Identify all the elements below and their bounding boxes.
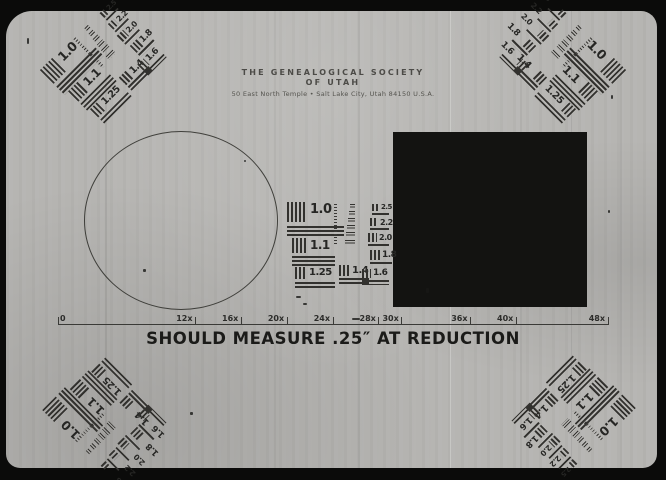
micro-stripe-row	[86, 448, 92, 454]
stripe-block	[339, 265, 350, 276]
micro-tick-strip	[334, 204, 337, 246]
scale-tick	[241, 317, 242, 325]
pattern-label: 1.1	[310, 239, 334, 251]
film-scan: THE GENEALOGICAL SOCIETY OF UTAH 50 East…	[0, 0, 666, 480]
pattern-label: 1.8	[382, 251, 406, 260]
stripe-bar	[370, 228, 389, 232]
stripe-block	[295, 267, 307, 279]
scale-tick-label: 16x	[210, 314, 238, 323]
resolution-target-center: 1.01.11.251.41.61.82.02.22.5	[287, 201, 391, 289]
scale-tick	[195, 317, 196, 325]
film-speck	[143, 269, 146, 272]
film-speck	[303, 303, 307, 305]
scale-tick	[333, 317, 334, 325]
stripe-bar	[295, 282, 335, 289]
film-speck	[296, 296, 301, 298]
micro-stripe-row	[575, 25, 581, 31]
scale-tick	[608, 317, 609, 325]
stripe-block	[362, 269, 371, 278]
scale-tick-label: 48x	[577, 314, 605, 323]
micro-stripe-row	[90, 443, 97, 450]
pattern-label: 2.5	[381, 204, 405, 211]
scale-tick	[516, 317, 517, 325]
stripe-bar	[368, 244, 389, 248]
pattern-label: 2.2	[380, 219, 404, 227]
stripe-bar	[362, 280, 389, 285]
micro-stripe-row	[349, 211, 355, 215]
scale-tick-label: 30x	[371, 314, 399, 323]
micro-stripe-row	[94, 437, 101, 444]
film-speck	[27, 38, 29, 44]
film-speck	[244, 160, 246, 162]
micro-stripe-row	[566, 35, 574, 43]
film-speck	[426, 288, 429, 293]
pattern-label: 2.0	[379, 234, 403, 242]
pattern-label: 1.6	[373, 269, 397, 278]
scale-tick-label: 40x	[485, 314, 513, 323]
scale-tick-label: 36x	[440, 314, 468, 323]
stripe-block	[287, 202, 307, 222]
scale-tick-label: 20x	[256, 314, 284, 323]
stripe-block	[370, 218, 378, 226]
scale-tick-label: 24x	[302, 314, 330, 323]
stripe-bar	[372, 213, 389, 216]
micro-stripe-row	[347, 225, 355, 230]
micro-stripe-row	[586, 446, 592, 452]
micro-stripe-row	[345, 240, 355, 245]
stripe-block	[372, 204, 379, 211]
film-speck	[608, 210, 610, 213]
scale-tick-label: 12x	[165, 314, 193, 323]
film-speck	[611, 95, 613, 99]
scale-tick	[287, 317, 288, 325]
micro-stripe-row	[348, 218, 355, 222]
scale-tick	[58, 317, 59, 325]
film-speck	[190, 412, 193, 415]
stripe-bar	[292, 256, 335, 266]
density-test-patch	[393, 132, 587, 307]
micro-stripe-row	[89, 30, 96, 37]
micro-stripe-row	[581, 441, 588, 448]
measurement-caption: SHOULD MEASURE .25″ AT REDUCTION	[0, 329, 666, 348]
target-pattern-group: 1.01.11.251.41.61.82.02.22.5	[287, 201, 391, 289]
micro-stripe-row	[106, 50, 116, 60]
scale-zero-label: 0	[60, 314, 66, 323]
scale-tick	[401, 317, 402, 325]
film-speck	[352, 318, 360, 320]
focus-test-circle	[84, 131, 278, 310]
stripe-bar	[370, 262, 392, 266]
micro-stripe-row	[84, 25, 90, 31]
scale-tick	[470, 317, 471, 325]
pattern-label: 1.0	[310, 203, 334, 216]
stripe-block	[370, 250, 380, 260]
stripe-block	[292, 238, 307, 253]
micro-stripe-row	[346, 232, 355, 237]
micro-stripe-row	[571, 30, 578, 37]
micro-stripe-row	[350, 204, 355, 208]
stripe-block	[368, 233, 377, 242]
pattern-label: 1.25	[309, 268, 333, 278]
